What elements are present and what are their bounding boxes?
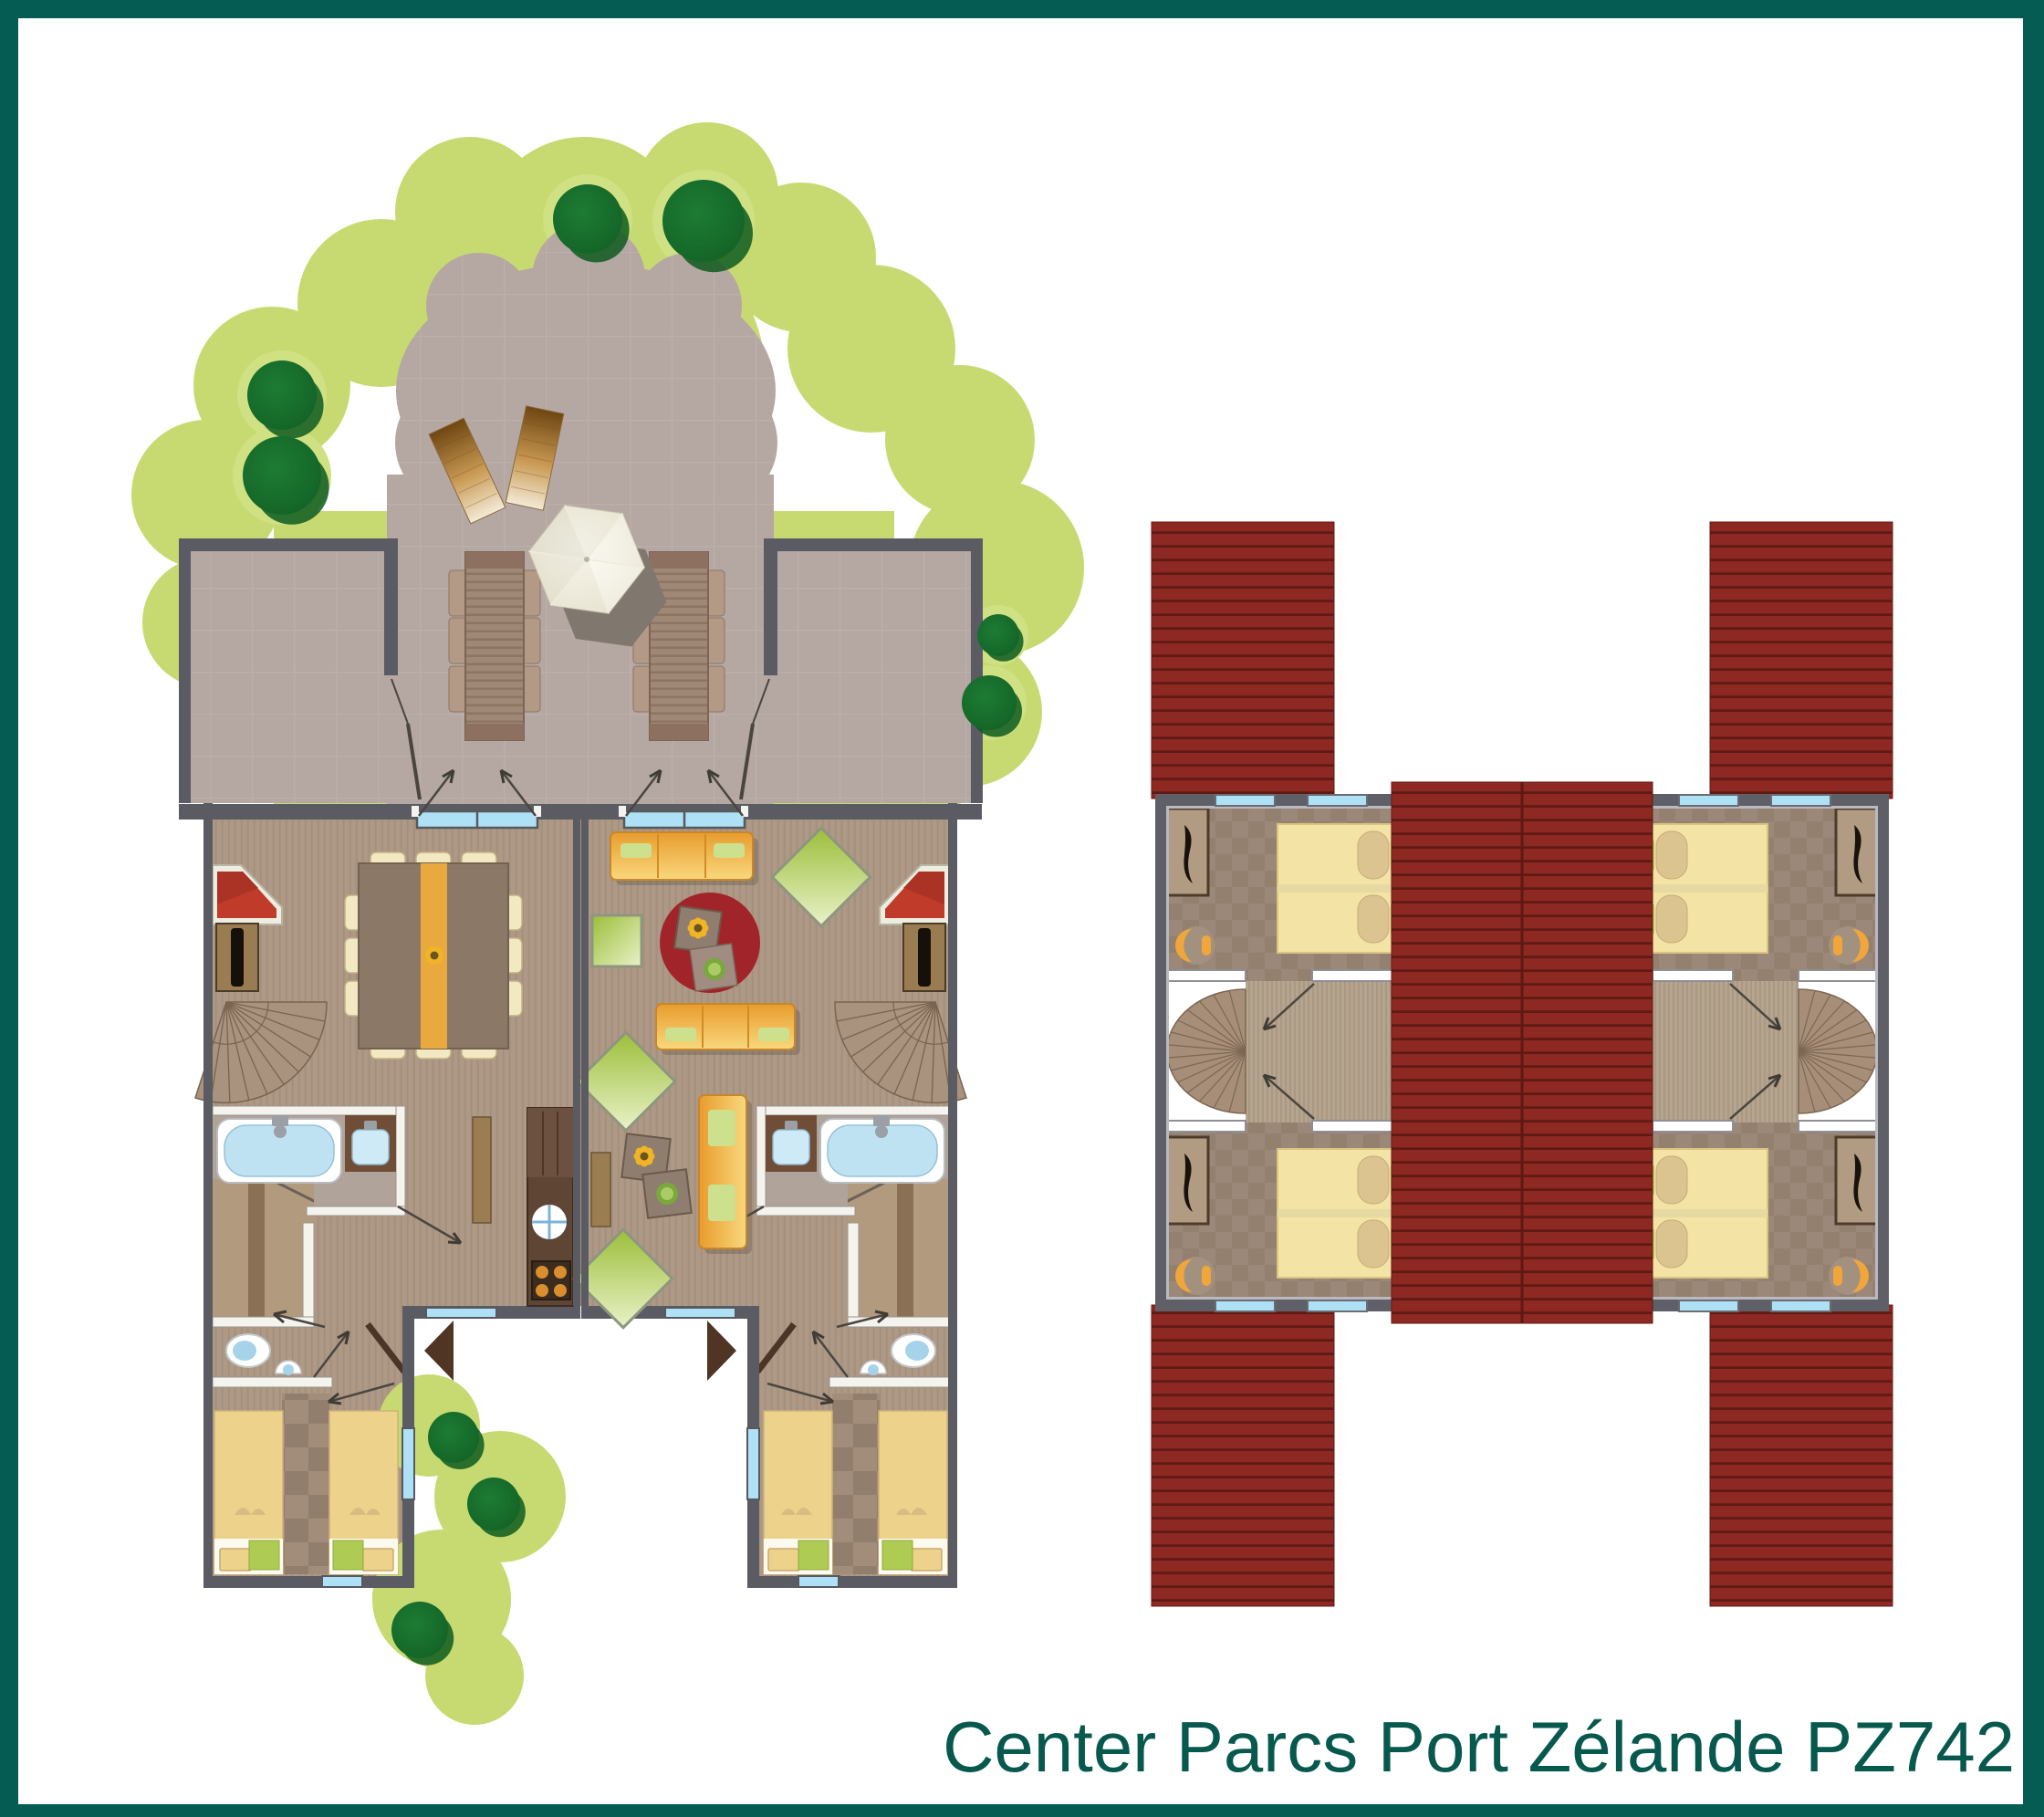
svg-text:Center Parcs Port Zélande PZ74: Center Parcs Port Zélande PZ742 — [943, 1707, 2015, 1787]
